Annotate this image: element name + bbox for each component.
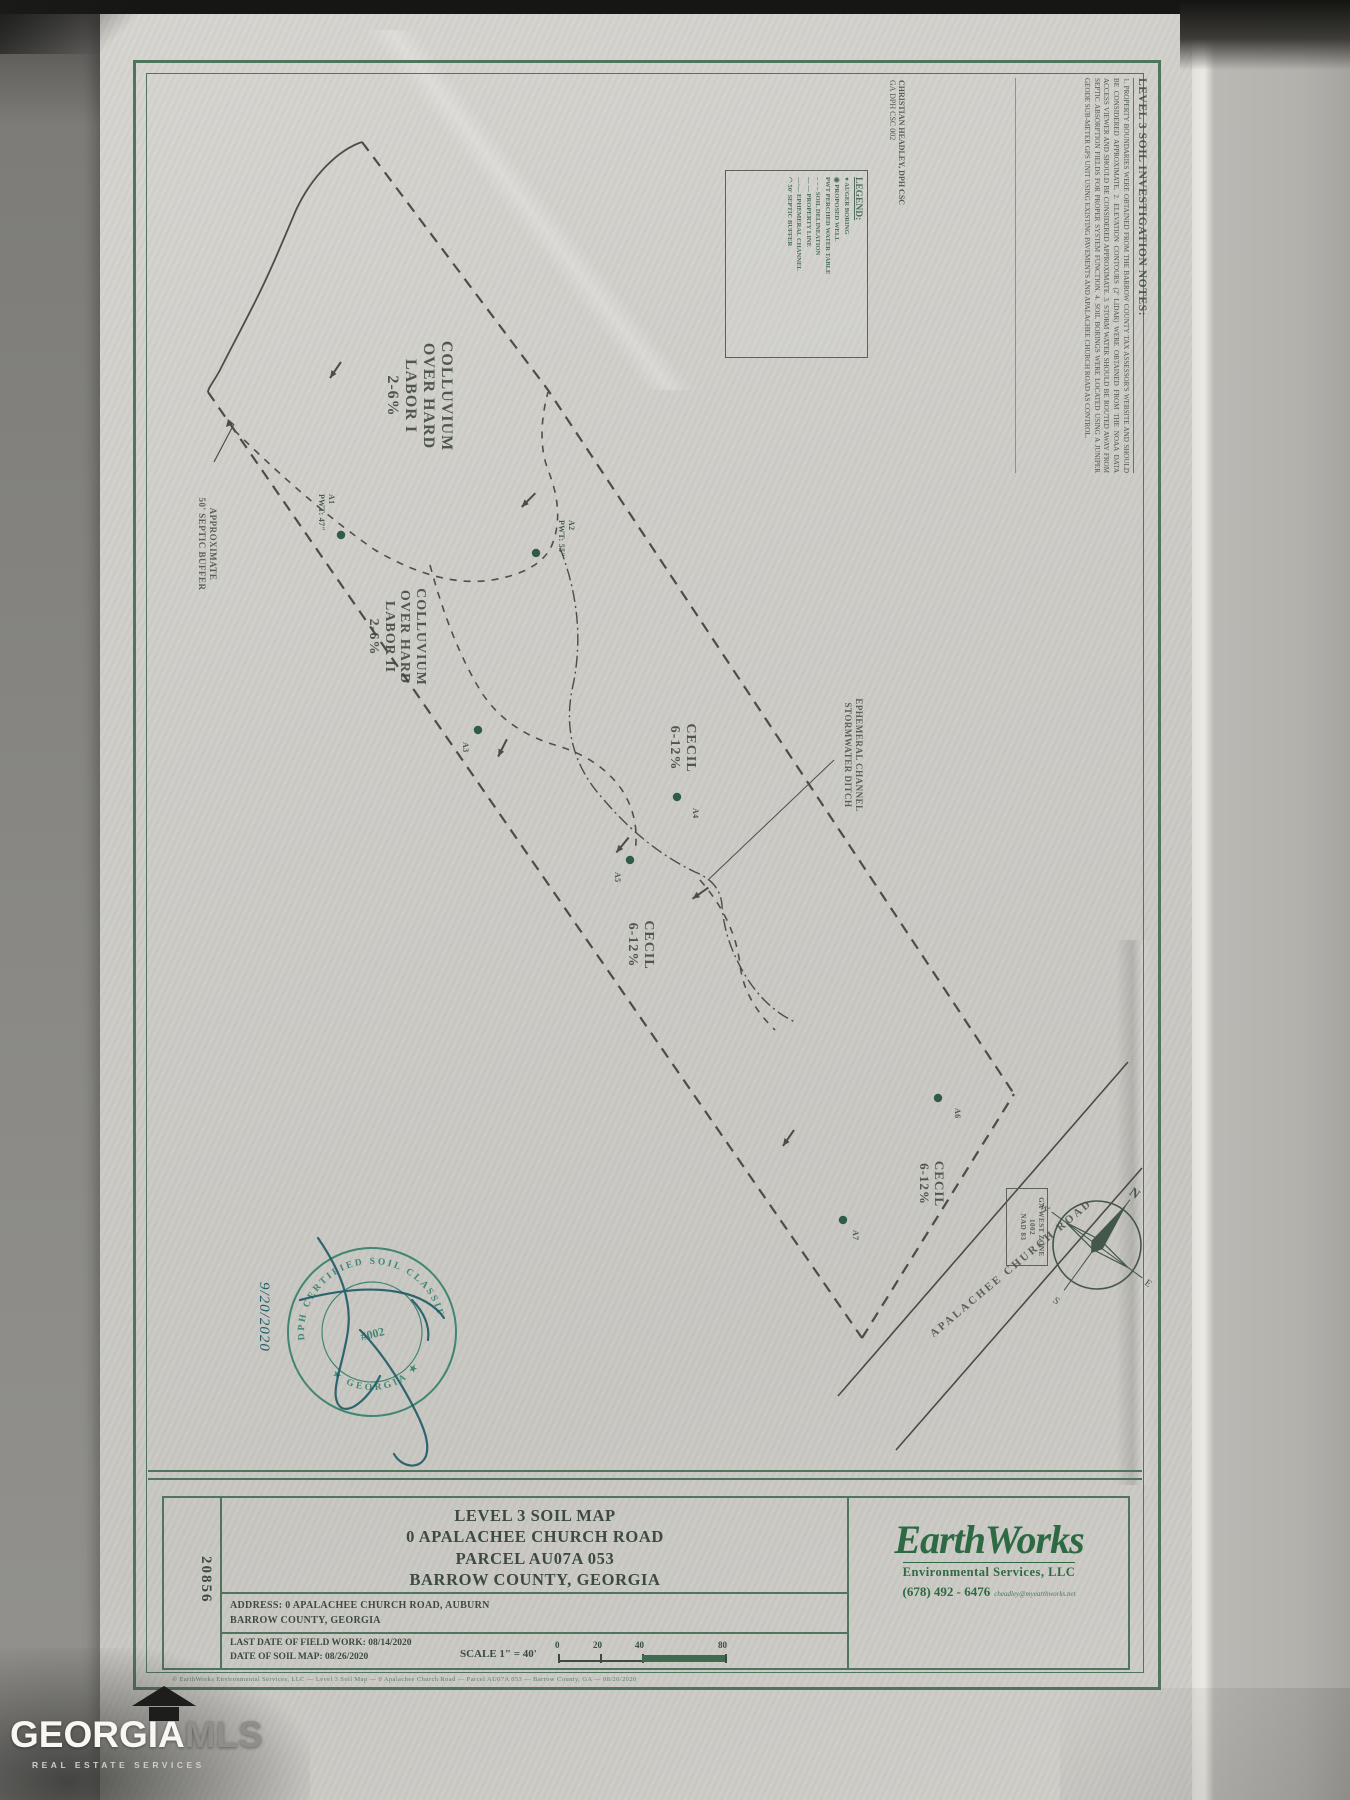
boring-label-a4: A4: [688, 808, 700, 830]
company-name: EarthWorks: [852, 1520, 1126, 1560]
georgia-mls-watermark: GEORGIAMLS: [10, 1716, 263, 1753]
address-line-2: BARROW COUNTY, GEORGIA: [230, 1613, 830, 1628]
channel-label-leader: [708, 760, 834, 880]
boring-dot-a1: [337, 531, 345, 539]
property-line-northeast: [362, 142, 1014, 1094]
title-block-divider-left: [220, 1498, 222, 1668]
compass-e-label: E: [1142, 1278, 1153, 1290]
scale-tick: [600, 1654, 602, 1663]
legend-box: LEGEND: ● AUGER BORING ◉ PROPOSED WELL P…: [725, 170, 868, 358]
boring-dot-a4: [673, 793, 681, 801]
soil-area-label-colluvium-2: COLLUVIUM OVER HARD LABOR II 2-6%: [350, 544, 428, 730]
legend-item: —·— EPHEMERAL CHANNEL: [794, 177, 804, 351]
boring-dot-a5: [626, 856, 634, 864]
soil-area-label-cecil-upper: CECIL 6-12%: [652, 712, 698, 784]
map-title: LEVEL 3 SOIL MAP 0 APALACHEE CHURCH ROAD…: [230, 1505, 840, 1591]
company-phone: (678) 492 - 6476: [902, 1584, 990, 1599]
compass-n-label: N: [1127, 1184, 1144, 1202]
flow-arrow: [616, 837, 628, 854]
ephemeral-channel-label: EPHEMERAL CHANNEL STORMWATER DITCH: [828, 676, 864, 834]
scale-label: SCALE 1" = 40': [460, 1648, 537, 1660]
property-line-southwest: [208, 392, 862, 1338]
soil-area-label-colluvium-1: COLLUVIUM OVER HARD LABOR I 2-6%: [375, 286, 455, 506]
flow-arrow: [496, 739, 509, 756]
title-block-rule-2: [222, 1632, 847, 1634]
boring-label-a7: A7: [848, 1230, 860, 1252]
soil-delineation-3: [700, 880, 775, 1030]
watermark-georgia: GEORGIA: [10, 1714, 185, 1755]
handwritten-signature: [300, 1238, 444, 1466]
scale-tick: [558, 1654, 560, 1663]
scale-tick-number: 40: [635, 1640, 644, 1650]
ephemeral-channel-line: [560, 548, 795, 1022]
title-line-4: BARROW COUNTY, GEORGIA: [230, 1569, 840, 1590]
company-subtitle: Environmental Services, LLC: [903, 1562, 1076, 1580]
boring-dot-a2: [532, 549, 540, 557]
watermark-mls: MLS: [185, 1714, 263, 1755]
notes-body: 1. PROPERTY BOUNDARIES WERE OBTAINED FRO…: [1081, 78, 1130, 473]
legend-item: ◉ PROPOSED WELL: [832, 177, 842, 351]
flow-arrow: [522, 491, 536, 509]
boring-label-a6: A6: [950, 1108, 962, 1130]
legend-item: – – – SOIL DELINEATION: [813, 177, 823, 351]
boring-dot-a3: [474, 726, 482, 734]
septic-buffer-label: APPROXIMATE 50' SEPTIC BUFFER: [188, 468, 218, 620]
notes-title: LEVEL 3 SOIL INVESTIGATION NOTES:: [1133, 78, 1148, 473]
compass-s-label: S: [1051, 1295, 1062, 1307]
flow-arrow: [693, 884, 709, 903]
boring-dot-a6: [934, 1094, 942, 1102]
scanned-document-photo: DPH CERTIFIED SOIL CLASSIFIER ★ GEORGIA …: [0, 0, 1350, 1800]
legend-item: — — PROPERTY LINE: [803, 177, 813, 351]
prepared-by-block: CHRISTIAN HEADLEY, DPH CSC GA DPH CSC 00…: [874, 80, 906, 266]
road-edge-1: [838, 1062, 1128, 1396]
scale-tick-number: 80: [718, 1640, 727, 1650]
handwritten-date: 9/20/2020: [246, 1282, 272, 1386]
title-line-2: 0 APALACHEE CHURCH ROAD: [230, 1526, 840, 1547]
title-line-1: LEVEL 3 SOIL MAP: [230, 1505, 840, 1526]
certification-seal: DPH CERTIFIED SOIL CLASSIFIER ★ GEORGIA …: [0, 12, 474, 1504]
prepared-by-license: GA DPH CSC 002: [888, 80, 897, 266]
boring-label-a3: A3: [458, 742, 470, 764]
flow-arrow: [330, 362, 341, 378]
boring-label-a2: A2 PWT: 55": [552, 520, 576, 572]
buffer-leader-line: [214, 424, 234, 462]
scale-bar-fill: [642, 1655, 725, 1662]
boring-label-a1: A1 PWT: 47": [314, 494, 336, 540]
company-email: cheadley@myearthworks.net: [994, 1590, 1075, 1598]
flow-arrow: [783, 1130, 794, 1146]
scale-tick: [725, 1654, 727, 1663]
boring-label-a5: A5: [610, 872, 622, 894]
earthworks-logo-block: EarthWorks Environmental Services, LLC (…: [852, 1520, 1126, 1601]
scale-tick-number: 20: [593, 1640, 602, 1650]
address-block: ADDRESS: 0 APALACHEE CHURCH ROAD, AUBURN…: [230, 1598, 830, 1628]
legend-item: PWT PERCHED WATER TABLE: [822, 177, 832, 351]
soil-delineation-2: [430, 565, 636, 852]
prepared-by-name: CHRISTIAN HEADLEY, DPH CSC: [897, 80, 906, 266]
address-line-1: ADDRESS: 0 APALACHEE CHURCH ROAD, AUBURN: [230, 1598, 830, 1613]
soil-area-label-cecil-middle: CECIL 6-12%: [610, 898, 656, 992]
title-line-3: PARCEL AU07A 053: [230, 1548, 840, 1569]
soil-area-label-cecil-lower: CECIL 6-12%: [902, 1150, 946, 1218]
watermark-tagline: REAL ESTATE SERVICES: [32, 1760, 205, 1770]
scale-tick-number: 0: [555, 1640, 560, 1650]
title-block-rule-1: [222, 1592, 847, 1594]
legend-item: ◠ 50' SEPTIC BUFFER: [784, 177, 794, 351]
soil-investigation-notes: LEVEL 3 SOIL INVESTIGATION NOTES: 1. PRO…: [1015, 78, 1148, 473]
stream-line: [208, 142, 362, 392]
legend-title: LEGEND:: [853, 177, 863, 351]
fine-print: © EarthWorks Environmental Services, LLC…: [172, 1676, 1102, 1683]
boring-dot-a7: [839, 1216, 847, 1224]
title-block-divider-right: [847, 1498, 849, 1668]
legend-item: ● AUGER BORING: [841, 177, 851, 351]
